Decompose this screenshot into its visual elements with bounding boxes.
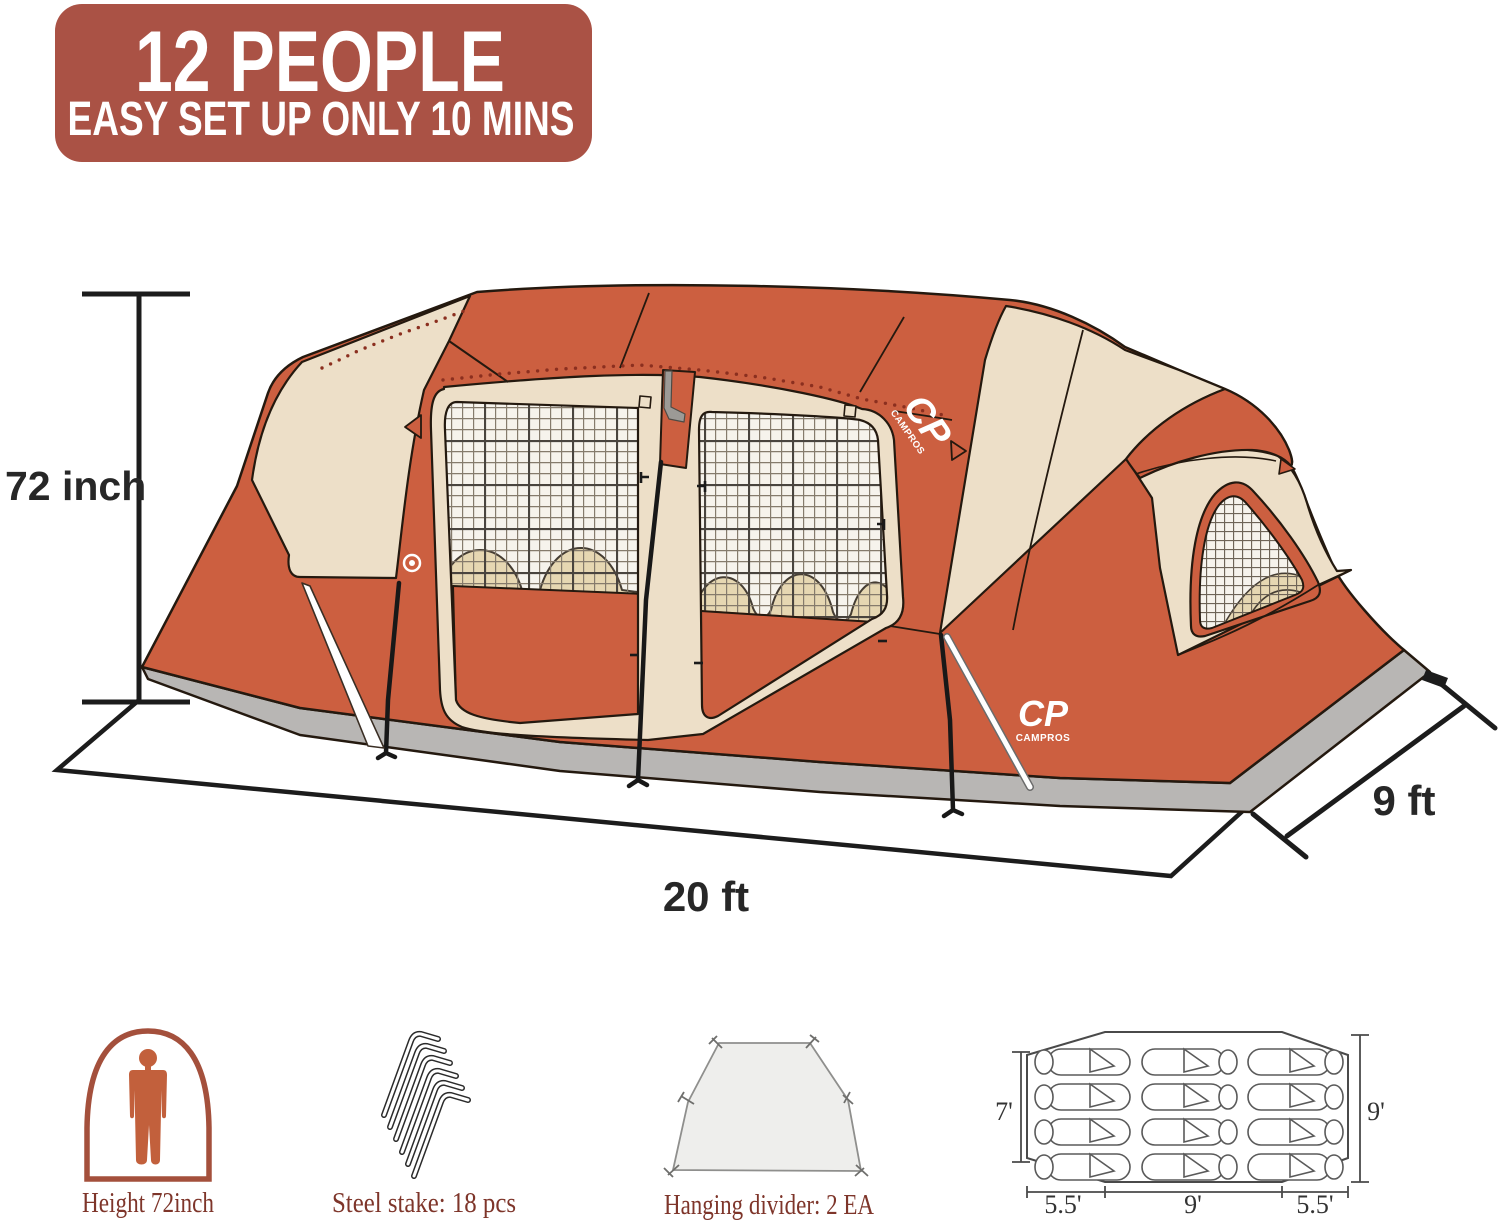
svg-text:9 ft: 9 ft [1373, 777, 1436, 824]
svg-text:20 ft: 20 ft [663, 873, 749, 920]
svg-text:7': 7' [995, 1097, 1013, 1126]
svg-text:9': 9' [1367, 1097, 1385, 1126]
svg-text:Hanging divider: 2 EA: Hanging divider: 2 EA [664, 1190, 875, 1221]
svg-text:5.5': 5.5' [1296, 1190, 1333, 1219]
svg-text:72 inch: 72 inch [5, 463, 146, 509]
svg-text:Height 72inch: Height 72inch [82, 1188, 214, 1219]
svg-text:5.5': 5.5' [1044, 1190, 1081, 1219]
svg-text:Steel stake: 18 pcs: Steel stake: 18 pcs [332, 1188, 516, 1219]
svg-text:EASY SET UP ONLY 10 MINS: EASY SET UP ONLY 10 MINS [68, 93, 575, 146]
svg-text:9': 9' [1184, 1190, 1202, 1219]
svg-text:CP: CP [1018, 693, 1069, 734]
svg-text:CAMPROS: CAMPROS [1016, 733, 1071, 744]
